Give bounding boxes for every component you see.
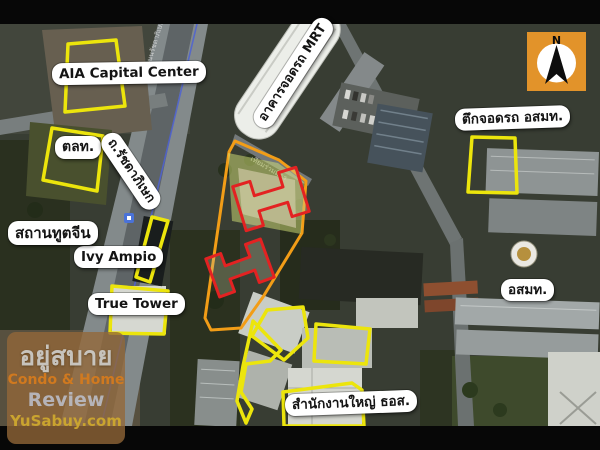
compass: N bbox=[527, 32, 586, 91]
watermark-tagline2: Review bbox=[28, 390, 105, 411]
label-chinese-embassy: สถานทูตจีน bbox=[8, 221, 98, 245]
warehouse bbox=[367, 104, 433, 173]
label-set: ตลท. bbox=[55, 136, 101, 159]
label-aia-capital-center: AIA Capital Center bbox=[52, 61, 206, 86]
watermark-url: YuSabuy.com bbox=[10, 412, 122, 432]
watermark-site-name: อยู่สบาย bbox=[19, 344, 112, 370]
watermark: อยู่สบาย Condo & Home Review YuSabuy.com bbox=[7, 332, 125, 444]
label-ivy-ampio: Ivy Ampio bbox=[74, 246, 163, 268]
transit-station-icon bbox=[124, 213, 134, 223]
label-true-tower: True Tower bbox=[88, 293, 185, 315]
label-mcot: อสมท. bbox=[501, 279, 554, 301]
top-letterbox-bar bbox=[0, 0, 600, 24]
compass-north-label: N bbox=[552, 34, 561, 47]
annotated-satellite-map: ถนนรัชดาภิเษก เทียมร่วมมิตร bbox=[0, 0, 600, 450]
watermark-tagline: Condo & Home bbox=[8, 372, 125, 390]
label-mcot-parking: ตึกจอดรถ อสมท. bbox=[455, 105, 571, 131]
